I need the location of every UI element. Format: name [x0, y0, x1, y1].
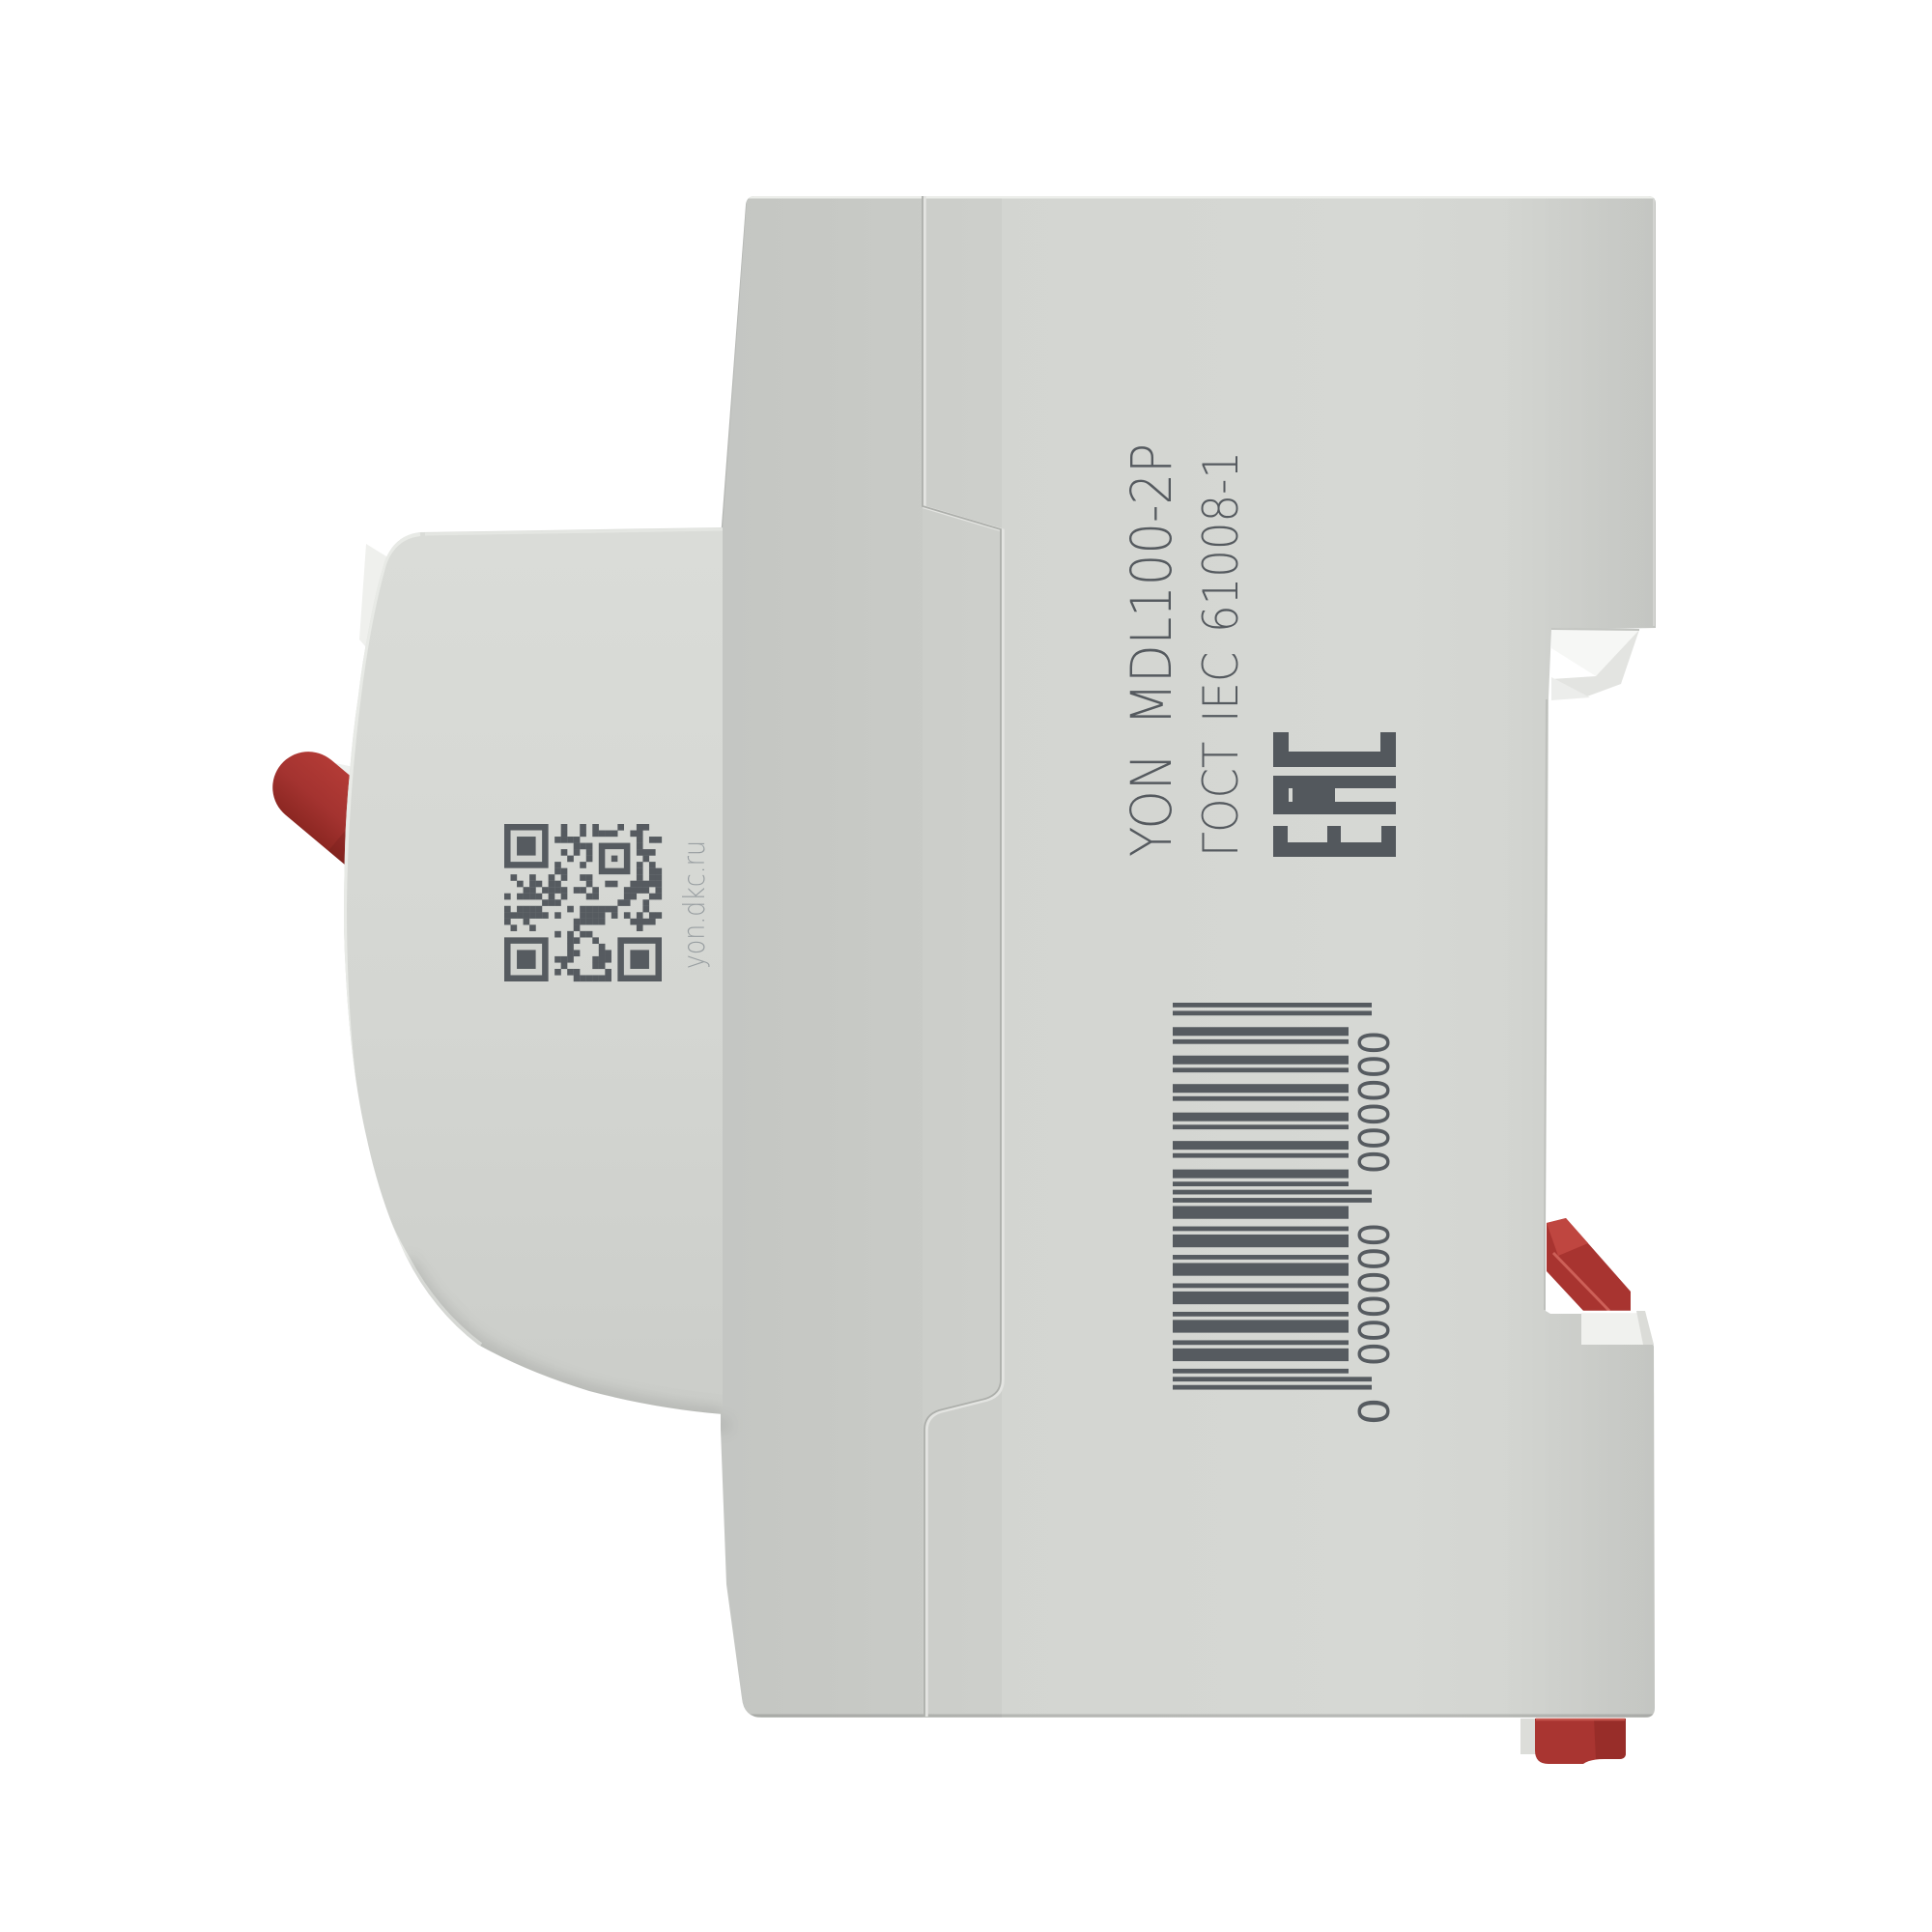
standard-text: ГОСТ IEC 61008-1	[1193, 451, 1249, 857]
svg-text:000000: 000000	[1350, 1223, 1400, 1366]
svg-text:000000: 000000	[1350, 1031, 1400, 1174]
rcd-side-view: yon.dkc.ru YON MDL100-2P ГОСТ IEC 61008-…	[0, 0, 1932, 1932]
svg-text:0: 0	[1350, 1398, 1400, 1425]
model-text: YON MDL100-2P	[1119, 443, 1184, 857]
barcode-digits: 0 000000 000000	[1350, 1031, 1400, 1425]
qr-caption: yon.dkc.ru	[678, 840, 712, 969]
product-photo-canvas: yon.dkc.ru YON MDL100-2P ГОСТ IEC 61008-…	[0, 0, 1932, 1932]
din-clip-bottom	[1520, 1719, 1626, 1764]
